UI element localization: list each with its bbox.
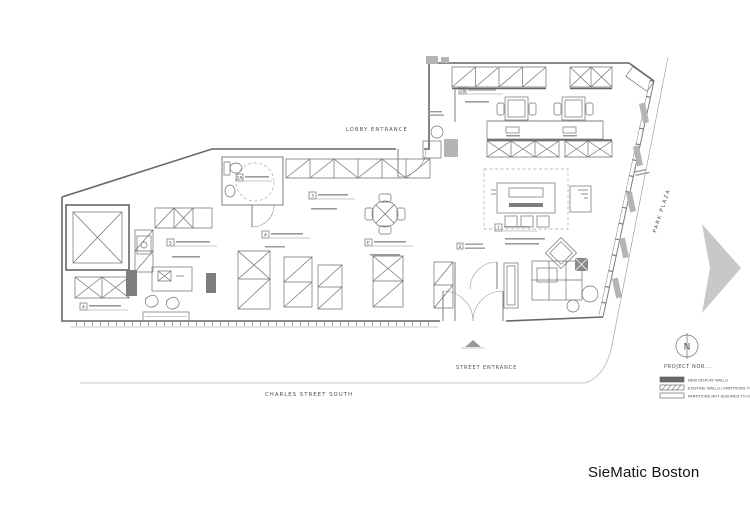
toilet-icon [230,163,242,173]
svg-text:3: 3 [311,194,314,200]
svg-text:EXISTING WALLS / PARTITIONS TO: EXISTING WALLS / PARTITIONS TO REMAIN [688,386,750,391]
callout-note-line [311,208,337,210]
armchair [545,237,576,268]
callout-note-line [465,101,489,103]
callout-note-line [374,241,406,243]
stool [521,216,533,227]
callout-note-line [370,254,400,256]
legend-item-partitions: PARTITIONS NOT ASSUMED TO REMAIN [660,393,750,399]
wall-bottom-right [506,317,603,321]
pouf [582,286,598,302]
legend: NEW DISPLAY WALLS EXISTING WALLS / PARTI… [660,377,750,399]
brand-caption: SieMatic Boston [588,464,699,481]
north-symbol: N [676,333,698,359]
callout-note-line [465,248,485,249]
wall-top-left [62,149,396,197]
callout-4: 4 [262,231,310,248]
callout-1B: 1B [459,87,503,103]
callout-note-line [504,226,530,228]
column [126,270,137,296]
svg-text:1B: 1B [459,89,465,95]
rug [575,258,588,271]
stool [505,216,517,227]
callout-2: 2 [457,243,485,250]
callout-note-line [468,89,496,91]
pouf [567,300,579,312]
next-arrow-icon[interactable] [702,224,741,313]
turning-radius-circle [236,163,274,201]
column [206,273,216,293]
callout-note-line [318,194,348,196]
showroom-cabinets [452,67,654,157]
legend-item-new-walls: NEW DISPLAY WALLS [660,377,728,383]
callout-note-line [245,176,269,178]
counter [487,121,603,139]
svg-text:NEW DISPLAY WALLS: NEW DISPLAY WALLS [688,378,728,383]
callout-4b: 4 [80,303,128,311]
elevator-shaft [66,205,129,270]
svg-text:2: 2 [459,244,462,250]
project-north-label: PROJECT NOR... [664,364,711,370]
north-letter: N [684,343,691,353]
chair [145,295,158,307]
park-plaza-label: PARK PLAZA [652,188,672,233]
side-door-swing [470,262,497,289]
callout-3: 3 [309,192,355,210]
stool [537,216,549,227]
callouts: 2A 3 4 5 E [80,87,545,311]
wall-corner-cut [629,63,654,81]
chair [166,297,179,309]
street-entrance-doors [443,291,503,348]
svg-text:1: 1 [497,226,500,232]
callout-5: 5 [167,239,217,258]
callout-note-line [465,244,483,245]
svg-text:2A: 2A [236,176,243,182]
site-note-lines [635,168,650,176]
callout-note-line [176,241,210,243]
property-line [80,57,668,383]
callout-note-line [505,238,545,240]
svg-text:4: 4 [82,305,85,311]
floor-plan-sheet: 2A 3 4 5 E [0,0,750,520]
callout-2A: 2A [236,174,272,182]
callout-note-line [172,256,200,258]
left-wing-cabinets [75,159,453,321]
entrance-arrow-marker [465,340,481,347]
bathroom [222,157,283,227]
lobby-entrance-door [398,149,426,177]
toilet-tank-icon [224,162,230,175]
svg-text:PARTITIONS NOT ASSUMED TO REMA: PARTITIONS NOT ASSUMED TO REMAIN [688,394,750,399]
charles-street-label: CHARLES STREET SOUTH [265,392,353,398]
site-lines [80,57,668,383]
column-round [431,126,443,138]
callout-E: E [365,239,413,256]
svg-text:E: E [367,241,370,247]
floor-plan-canvas: 2A 3 4 5 E [0,0,750,520]
center-island-display [484,169,591,229]
console [504,263,518,308]
callout-note-line [271,233,303,235]
lounge-area [455,237,598,321]
svg-text:4: 4 [264,233,267,239]
bathroom-door-swing [252,205,274,227]
svg-text:5: 5 [169,241,172,247]
callout-note-line [505,243,539,245]
round-table-group [365,194,405,234]
sink-icon [225,185,235,197]
lobby-entrance-label: LOBBY ENTRANCE [346,127,408,133]
callout-note-line [265,246,285,248]
street-entrance-label: STREET ENTRANCE [456,365,517,371]
callout-note-line [89,305,121,307]
table-with-chairs [554,97,593,137]
table-with-chairs [497,97,536,137]
legend-item-existing-walls: EXISTING WALLS / PARTITIONS TO REMAIN [660,385,750,391]
